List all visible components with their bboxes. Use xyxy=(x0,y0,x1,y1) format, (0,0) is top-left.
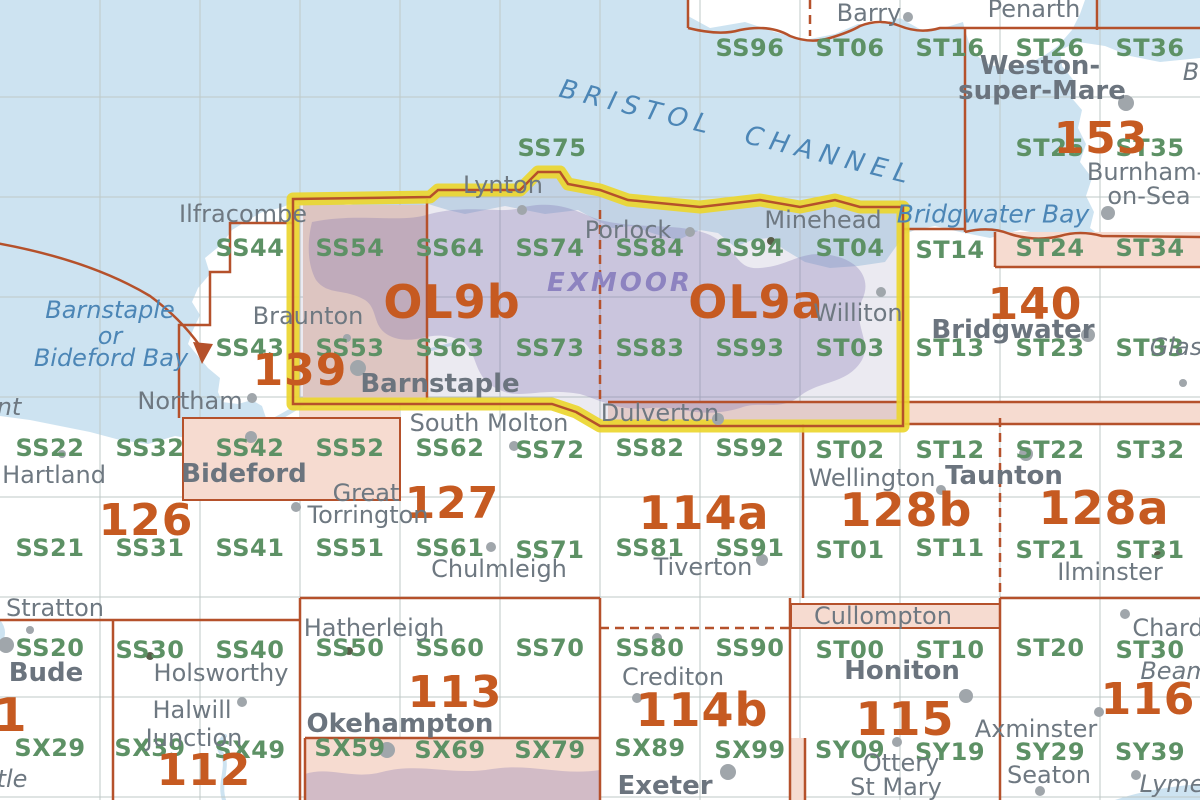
place-label: Ottery xyxy=(863,751,940,775)
place-label: Stratton xyxy=(6,596,104,620)
place-label: Cullompton xyxy=(814,604,952,628)
grid-square-label: SS54 xyxy=(316,236,385,260)
grid-square-label: SS92 xyxy=(716,436,785,460)
grid-square-label: SX89 xyxy=(614,736,685,760)
edge-text-fragment: nt xyxy=(0,395,21,419)
place-label: Holsworthy xyxy=(154,661,289,685)
grid-square-label: SS64 xyxy=(416,236,485,260)
place-label: St Mary xyxy=(850,775,942,799)
grid-square-label: SS20 xyxy=(16,636,85,660)
place-label: Junction xyxy=(146,726,243,750)
grid-square-label: SS70 xyxy=(516,636,585,660)
place-label: Chard xyxy=(1132,616,1200,640)
grid-square-label: ST24 xyxy=(1015,236,1084,260)
grid-square-label: SS74 xyxy=(516,236,585,260)
place-label: Bude xyxy=(9,660,84,686)
grid-square-label: SS93 xyxy=(716,336,785,360)
grid-square-label: ST20 xyxy=(1015,636,1084,660)
place-label: Minehead xyxy=(764,208,881,232)
place-label: Seaton xyxy=(1007,763,1091,787)
sea-name-label: Bridgwater Bay xyxy=(897,202,1090,227)
grid-square-label: SS42 xyxy=(216,436,285,460)
grid-square-label: ST32 xyxy=(1115,438,1184,462)
place-label: Bridgwater xyxy=(931,317,1094,343)
grid-square-label: ST16 xyxy=(915,36,984,60)
grid-square-label: ST01 xyxy=(815,538,884,562)
place-label: Braunton xyxy=(253,304,364,328)
sheet-number[interactable]: 112 xyxy=(157,749,252,793)
place-label: Crediton xyxy=(622,665,724,689)
grid-square-label: ST02 xyxy=(815,438,884,462)
grid-square-label: SX59 xyxy=(314,736,385,760)
sheet-number[interactable]: 114b xyxy=(636,687,769,733)
sheet-number[interactable]: 126 xyxy=(99,499,194,543)
place-label: Barnstaple xyxy=(360,371,519,397)
grid-square-label: SS63 xyxy=(416,336,485,360)
place-label: Exeter xyxy=(617,773,712,799)
place-label: Hartland xyxy=(2,463,106,487)
place-label: Dulverton xyxy=(601,401,720,425)
sheet-number[interactable]: 1 xyxy=(0,692,28,738)
place-label: on-Sea xyxy=(1107,184,1190,208)
grid-square-label: SX69 xyxy=(414,738,485,762)
os-sheet-index-map: SS96ST06ST16ST26ST36SS75ST25ST35SS44SS54… xyxy=(0,0,1200,800)
sheet-number[interactable]: OL9a xyxy=(688,279,823,325)
grid-square-label: ST36 xyxy=(1115,36,1184,60)
sheet-number[interactable]: 139 xyxy=(253,349,348,393)
labels-layer: SS96ST06ST16ST26ST36SS75ST25ST35SS44SS54… xyxy=(0,0,1200,800)
place-label: Tiverton xyxy=(654,555,753,579)
edge-text-fragment: Glas xyxy=(1150,335,1200,359)
sheet-number[interactable]: 153 xyxy=(1054,117,1149,161)
sheet-number[interactable]: 115 xyxy=(855,696,954,742)
grid-square-label: ST06 xyxy=(815,36,884,60)
place-label: Torrington xyxy=(308,503,429,527)
place-label: Honiton xyxy=(844,658,960,684)
grid-square-label: SS82 xyxy=(616,436,685,460)
place-label: Penarth xyxy=(988,0,1081,21)
place-label: Bideford xyxy=(181,461,307,487)
grid-square-label: SS51 xyxy=(316,536,385,560)
place-label: Wellington xyxy=(809,466,936,490)
place-label: Okehampton xyxy=(307,711,494,737)
grid-square-label: SS75 xyxy=(518,136,587,160)
edge-text-fragment: tle xyxy=(0,767,27,791)
place-label: Barry xyxy=(837,1,902,25)
grid-square-label: SS94 xyxy=(716,236,785,260)
grid-square-label: SS22 xyxy=(16,436,85,460)
place-label: Taunton xyxy=(945,463,1063,489)
grid-square-label: SX79 xyxy=(514,738,585,762)
place-label: Burnham- xyxy=(1087,160,1200,184)
grid-square-label: SS72 xyxy=(516,438,585,462)
place-label: Lynton xyxy=(463,173,543,197)
sheet-number[interactable]: OL9b xyxy=(383,279,520,325)
grid-square-label: ST12 xyxy=(915,438,984,462)
sheet-number[interactable]: 128b xyxy=(840,487,973,533)
grid-square-label: SS44 xyxy=(216,236,285,260)
grid-square-label: SS83 xyxy=(616,336,685,360)
sheet-number[interactable]: 114a xyxy=(638,490,769,536)
edge-text-fragment: B xyxy=(1183,60,1199,84)
place-label: Axminster xyxy=(975,717,1097,741)
sea-name-label: BRISTOL CHANNEL xyxy=(557,76,918,190)
grid-square-label: ST22 xyxy=(1015,438,1084,462)
place-label: South Molton xyxy=(410,411,569,435)
grid-square-label: SY39 xyxy=(1115,740,1185,764)
edge-text-fragment: Lyme xyxy=(1140,772,1200,796)
grid-square-label: SS90 xyxy=(716,636,785,660)
grid-square-label: SS96 xyxy=(716,36,785,60)
place-label: Porlock xyxy=(585,218,672,242)
sea-name-label: Bideford Bay xyxy=(34,346,188,370)
place-label: Williton xyxy=(813,301,902,325)
grid-square-label: SX99 xyxy=(714,738,785,762)
place-label: Halwill xyxy=(152,698,231,722)
grid-square-label: SS73 xyxy=(516,336,585,360)
sea-name-label: Barnstaple xyxy=(45,298,175,322)
grid-square-label: SS41 xyxy=(216,536,285,560)
grid-square-label: ST14 xyxy=(915,238,984,262)
sheet-number[interactable]: 128a xyxy=(1038,485,1169,531)
place-label: Ilfracombe xyxy=(179,202,307,226)
grid-square-label: SS21 xyxy=(16,536,85,560)
place-label: Ilminster xyxy=(1057,560,1163,584)
national-park-label: EXMOOR xyxy=(547,270,693,296)
grid-square-label: ST04 xyxy=(815,236,884,260)
place-label: Northam xyxy=(137,389,242,413)
grid-square-label: SS32 xyxy=(116,436,185,460)
grid-square-label: SS52 xyxy=(316,436,385,460)
place-label: Chulmleigh xyxy=(431,557,567,581)
grid-square-label: ST03 xyxy=(815,336,884,360)
grid-square-label: ST11 xyxy=(915,536,984,560)
grid-square-label: SS80 xyxy=(616,636,685,660)
place-label: super-Mare xyxy=(958,78,1126,104)
edge-text-fragment: Beam xyxy=(1140,659,1200,683)
grid-square-label: ST34 xyxy=(1115,236,1184,260)
place-label: Hatherleigh xyxy=(304,616,445,640)
grid-square-label: SS62 xyxy=(416,436,485,460)
